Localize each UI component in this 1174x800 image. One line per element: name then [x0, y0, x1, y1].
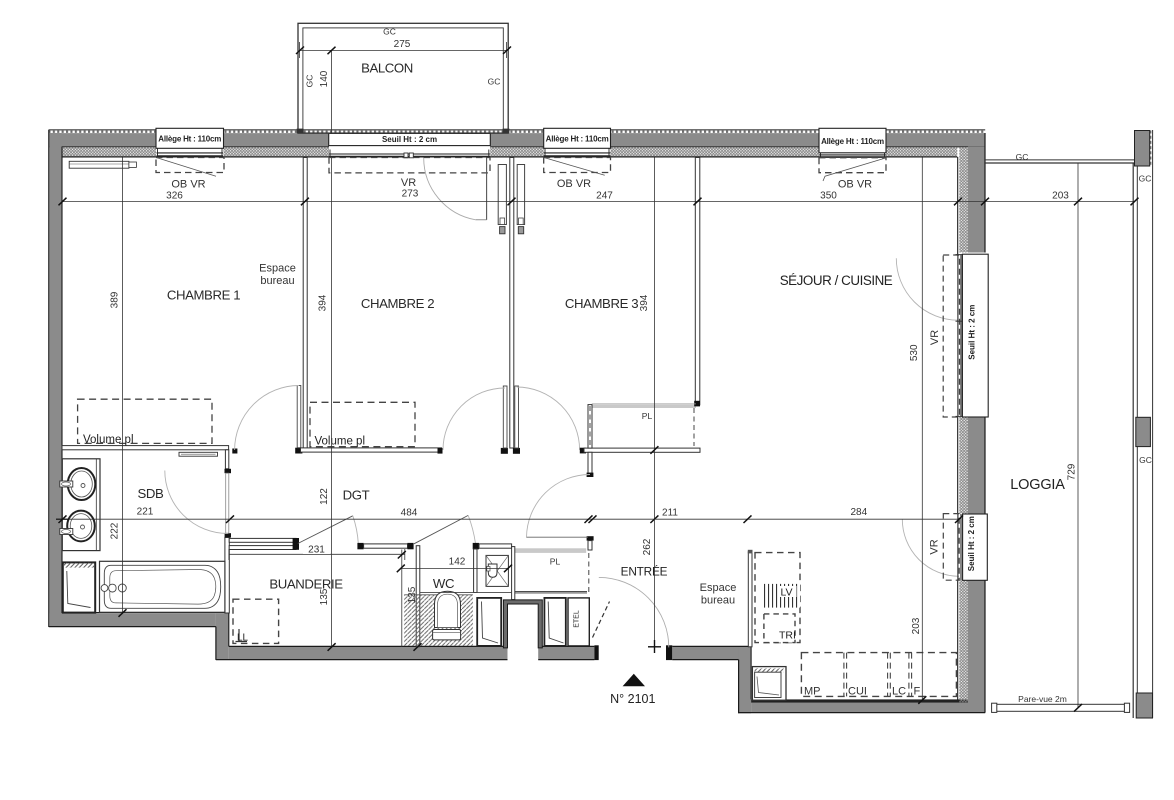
svg-text:GC: GC	[383, 27, 396, 37]
svg-text:Allège Ht : 110cm: Allège Ht : 110cm	[546, 135, 609, 144]
svg-text:231: 231	[308, 544, 325, 555]
svg-text:Volume pl: Volume pl	[83, 434, 134, 446]
svg-text:MP: MP	[804, 686, 821, 698]
svg-text:394: 394	[318, 294, 329, 311]
svg-text:Allège Ht : 110cm: Allège Ht : 110cm	[821, 137, 884, 146]
svg-text:LL: LL	[237, 633, 249, 644]
svg-text:CHAMBRE 1: CHAMBRE 1	[167, 288, 240, 303]
svg-text:VR: VR	[401, 177, 416, 189]
svg-text:GC: GC	[1139, 455, 1152, 465]
svg-text:F: F	[914, 686, 921, 698]
svg-text:222: 222	[110, 522, 121, 539]
svg-text:142: 142	[449, 557, 466, 568]
svg-text:326: 326	[166, 191, 183, 202]
svg-text:Allège Ht : 110cm: Allège Ht : 110cm	[158, 135, 221, 144]
svg-text:Seuil Ht : 2 cm: Seuil Ht : 2 cm	[382, 135, 437, 144]
svg-text:135: 135	[407, 586, 418, 603]
svg-text:Seuil Ht : 2 cm: Seuil Ht : 2 cm	[967, 516, 976, 571]
svg-text:LV: LV	[781, 587, 793, 599]
svg-text:OB VR: OB VR	[557, 178, 591, 190]
svg-text:BALCON: BALCON	[361, 61, 413, 76]
svg-text:GC: GC	[1016, 152, 1029, 162]
svg-text:VR: VR	[929, 330, 941, 345]
svg-text:262: 262	[642, 538, 653, 555]
svg-text:WC: WC	[433, 576, 455, 591]
svg-text:bureau: bureau	[260, 275, 294, 287]
svg-text:Espace: Espace	[700, 582, 737, 594]
svg-text:SDB: SDB	[138, 486, 165, 501]
svg-text:GC: GC	[488, 77, 501, 87]
svg-text:140: 140	[319, 70, 330, 87]
svg-text:530: 530	[909, 344, 920, 361]
svg-text:PL: PL	[642, 411, 653, 421]
svg-text:Pare-vue 2m: Pare-vue 2m	[1018, 694, 1067, 704]
svg-text:203: 203	[1052, 191, 1069, 202]
svg-text:Volume pl: Volume pl	[315, 436, 366, 448]
svg-text:PL: PL	[550, 557, 561, 567]
svg-text:Espace: Espace	[259, 263, 296, 275]
svg-text:DGT: DGT	[343, 488, 370, 503]
svg-text:CHAMBRE 3: CHAMBRE 3	[565, 296, 638, 311]
svg-text:122: 122	[319, 488, 330, 505]
svg-text:BUANDERIE: BUANDERIE	[269, 577, 343, 592]
svg-text:394: 394	[639, 294, 650, 311]
svg-text:GC: GC	[305, 75, 315, 88]
svg-text:729: 729	[1067, 463, 1078, 480]
svg-text:GC: GC	[1139, 174, 1152, 184]
svg-text:350: 350	[820, 191, 837, 202]
svg-text:211: 211	[662, 508, 678, 519]
svg-text:OB VR: OB VR	[171, 179, 205, 191]
svg-text:284: 284	[850, 507, 867, 518]
svg-text:CUI: CUI	[848, 686, 867, 698]
svg-text:VR: VR	[929, 539, 941, 554]
svg-text:203: 203	[911, 617, 922, 634]
svg-text:OB VR: OB VR	[838, 179, 872, 191]
svg-text:TRI: TRI	[779, 630, 796, 642]
svg-text:389: 389	[110, 291, 121, 308]
svg-text:247: 247	[596, 191, 613, 202]
svg-text:275: 275	[394, 39, 411, 50]
svg-text:221: 221	[137, 507, 154, 518]
svg-text:LC: LC	[892, 686, 906, 698]
svg-text:484: 484	[401, 508, 418, 519]
svg-text:LOGGIA: LOGGIA	[1010, 477, 1065, 493]
svg-text:CHAMBRE 2: CHAMBRE 2	[361, 296, 434, 311]
svg-text:ENTRÉE: ENTRÉE	[621, 565, 668, 579]
svg-text:SÉJOUR / CUISINE: SÉJOUR / CUISINE	[780, 273, 893, 288]
svg-text:ETEL: ETEL	[574, 610, 581, 628]
svg-text:273: 273	[402, 189, 419, 200]
svg-text:Seuil Ht : 2 cm: Seuil Ht : 2 cm	[968, 305, 977, 360]
svg-text:bureau: bureau	[701, 595, 735, 607]
svg-text:N° 2101: N° 2101	[610, 692, 655, 706]
